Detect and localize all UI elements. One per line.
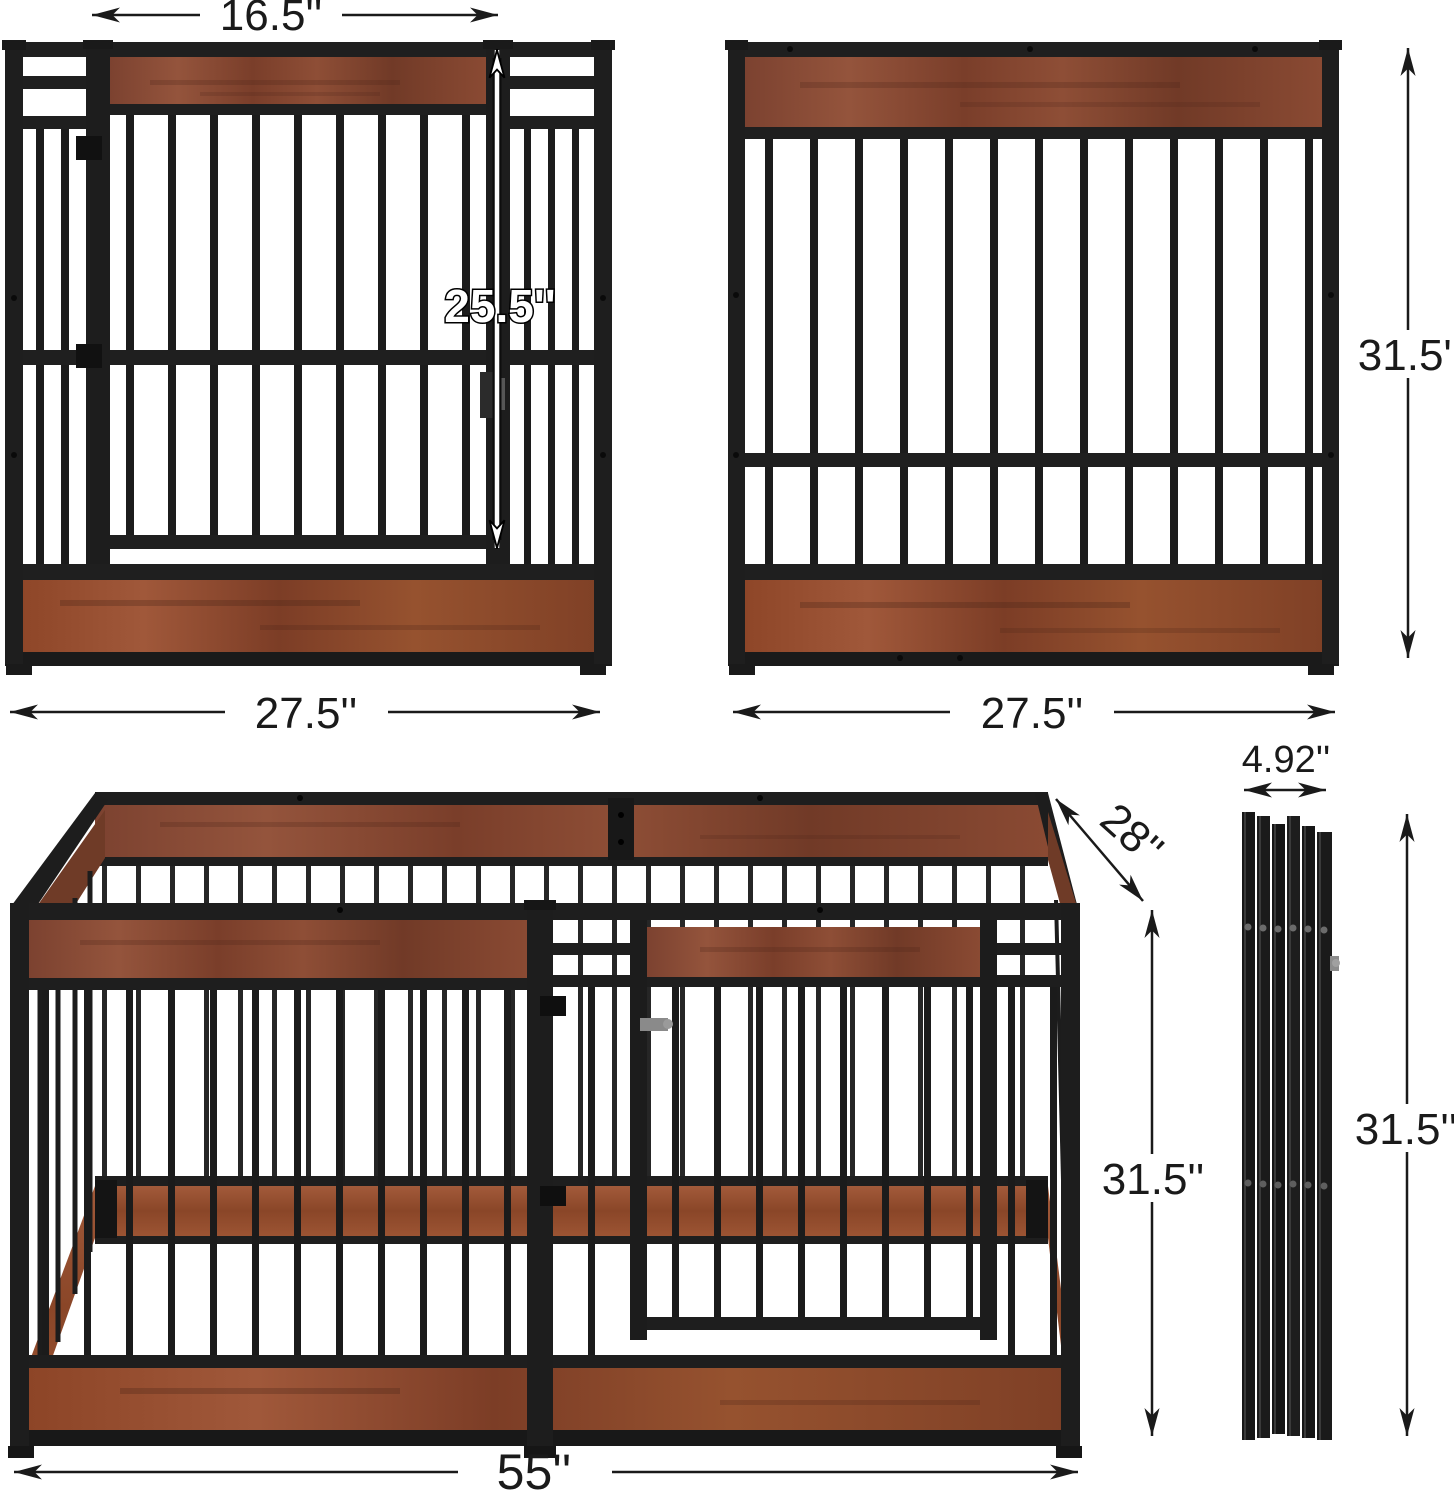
dim-door-width-label: 16.5'' [220,0,322,40]
assembled-pen-view: 55'' 28'' 31.5'' [8,792,1204,1500]
plain-panel-view: 31.5'' 27.5'' [725,40,1454,738]
front-left-wood-band [29,920,527,978]
door-hinge [76,136,102,160]
pen-door-bottom-rail [647,1317,980,1330]
dim-door-height-label: 25.5'' [444,280,555,332]
panel-wood-bottom-band [737,580,1330,652]
pen-door-right-post [980,916,997,1340]
folded-width-dimension: 4.92'' [1242,739,1330,790]
panel-wood-top-band [745,57,1322,127]
panel-bar [36,129,44,564]
left-panel-width-dimension: 27.5'' [10,689,600,738]
panel-bar [548,129,555,564]
panel-top-rail [728,42,1339,57]
dim-pen-depth-label: 28'' [1091,794,1173,874]
panel-bars [745,467,1322,564]
front-center-post [527,903,553,1449]
panel-bars [745,139,1322,455]
folded-panels-view: 4.92'' 31.5'' [1242,739,1454,1440]
door-bars [110,115,486,535]
panel-left-post [728,42,745,664]
dim-folded-width-label: 4.92'' [1242,739,1330,781]
back-wall-joint-plate [608,798,634,860]
panel-bar [524,129,531,564]
folded-height-dimension: 31.5'' [1355,814,1454,1436]
panel-height-dimension: 31.5'' [1358,48,1454,658]
pen-door-hinge [540,996,566,1016]
pen-door-bars [647,987,980,1317]
front-right-post [1061,903,1080,1449]
panel-wood-bottom-band [14,580,603,652]
dim-panel-height-label: 31.5'' [1358,331,1454,380]
dim-folded-height-label: 31.5'' [1355,1105,1454,1154]
panel-bar [572,129,579,564]
dim-left-panel-width-label: 27.5'' [255,689,357,738]
dim-pen-height-label: 31.5'' [1102,1155,1204,1204]
pen-height-dimension: 31.5'' [1102,910,1204,1436]
right-panel-width-dimension: 27.5'' [733,689,1335,738]
back-wall-wood-band [95,805,1048,857]
pen-door-left-post [630,916,647,1340]
dim-pen-width-label: 55'' [497,1444,572,1500]
panel-bar [61,129,69,564]
folded-slats [1242,812,1332,1440]
panel-left-post [5,42,23,664]
door-left-post [86,42,110,564]
pen-door-hinge [540,1186,566,1206]
dim-right-panel-width-label: 27.5'' [981,689,1083,738]
front-left-post [10,903,29,1449]
product-dimension-diagram: 16.5'' 25.5'' 27.5'' [0,0,1454,1500]
door-bottom-rail [110,535,486,549]
front-left-bars [29,990,527,1368]
pen-width-dimension: 55'' [14,1444,1078,1500]
door-width-dimension: 16.5'' [92,0,498,40]
pen-depth-dimension: 28'' [1056,794,1173,901]
panel-right-post [594,42,612,664]
folded-hinge-pins [1245,924,1328,1190]
door-panel-view: 16.5'' 25.5'' 27.5'' [2,0,615,738]
panel-right-post [1322,42,1339,664]
door-hinge [76,344,102,368]
